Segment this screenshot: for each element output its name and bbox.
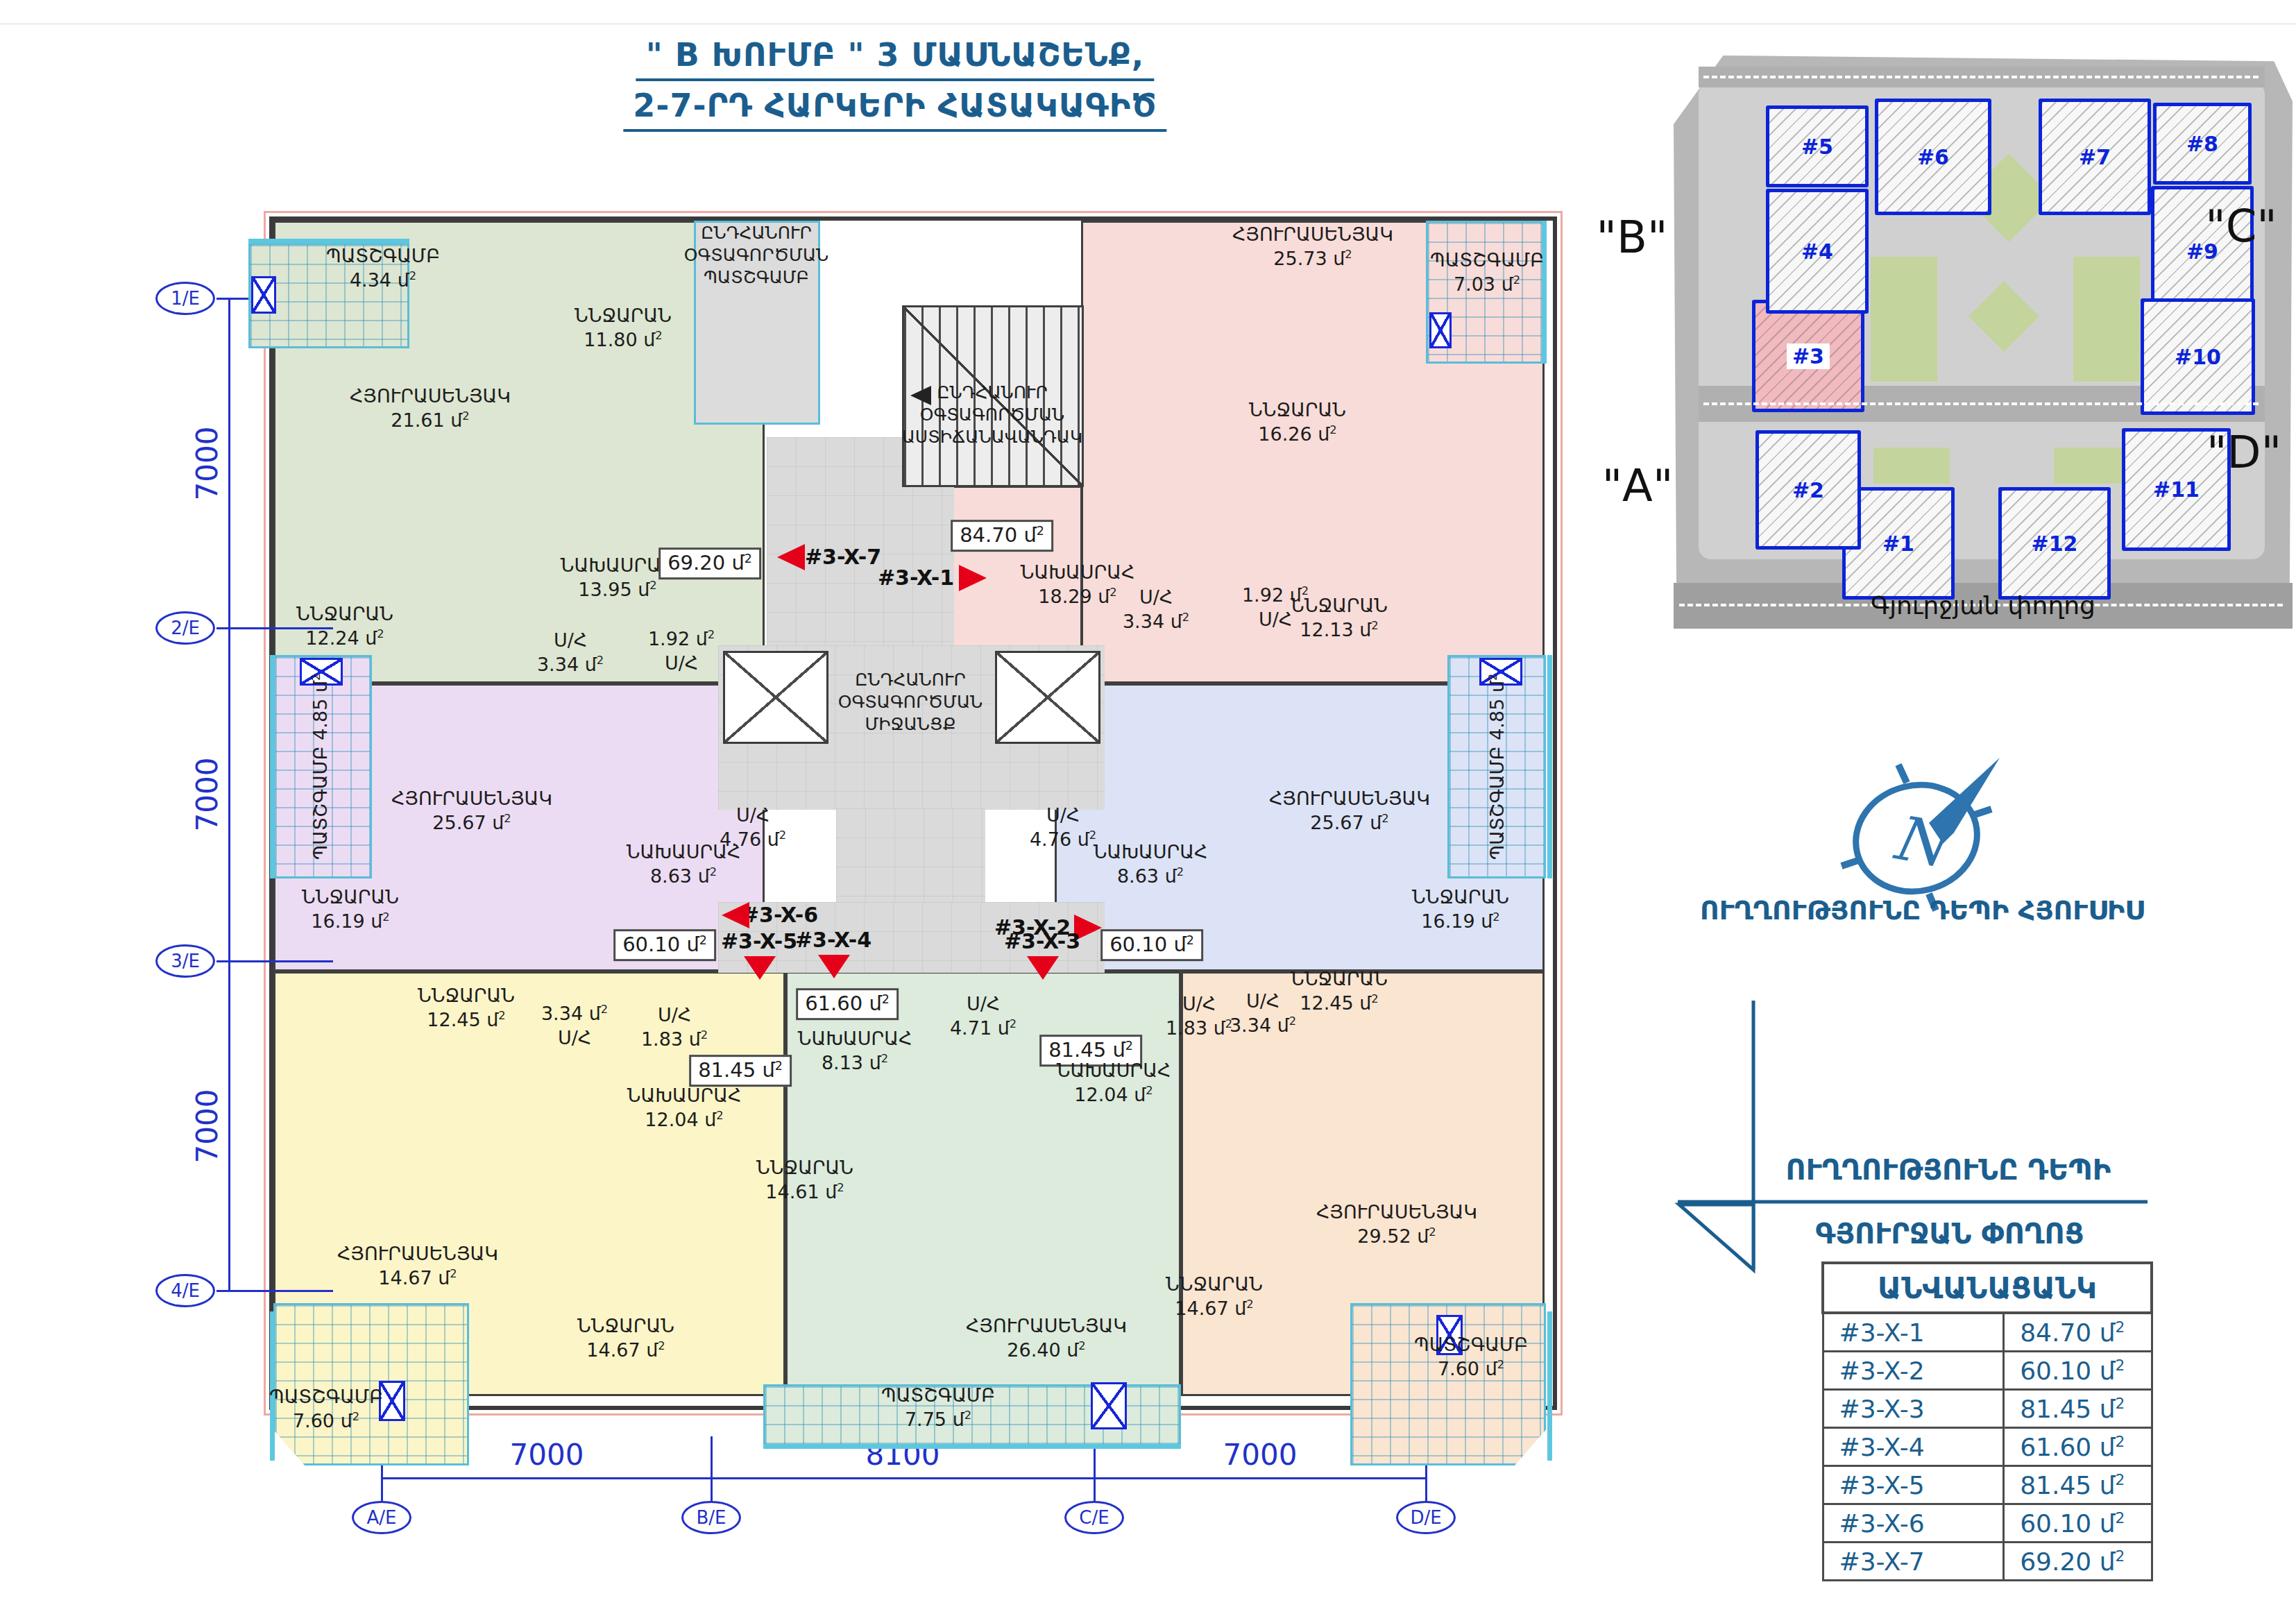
- legend-row-#3-X-3: #3-X-381.45 մ2: [1823, 1390, 2152, 1428]
- quadrant-label-2: "A": [1602, 460, 1674, 511]
- room-label-b-sh: Ս/Հ4.76 մ2: [1030, 803, 1096, 851]
- glazing-strip-5: [763, 1444, 1181, 1449]
- window-x-icon-1: [1429, 312, 1452, 348]
- entry-code-#3-X-5: #3-X-5: [721, 929, 797, 953]
- compass-icon: N: [1839, 751, 2012, 917]
- room-label-p-hall: ՆԱԽԱՍՐԱՀ18.29 մ2: [1021, 560, 1134, 609]
- street-direction-line1: ՈՒՂՂՈՒԹՅՈՒՆԸ ԴԵՊԻ: [1786, 1154, 2111, 1186]
- legend-area: 81.45 մ2: [2004, 1390, 2152, 1428]
- room-label-m-bed: ՆՆՋԱՐԱՆ14.61 մ2: [756, 1155, 853, 1204]
- site-building-#2: #2: [1755, 430, 1861, 550]
- legend-area: 84.70 մ2: [2004, 1313, 2152, 1352]
- room-label-l-sh: Ս/Հ4.76 մ2: [720, 803, 786, 851]
- axis-bubble-B/E: B/E: [681, 1501, 741, 1534]
- site-building-label-#8: #8: [2186, 132, 2218, 156]
- site-building-#5: #5: [1766, 105, 1869, 187]
- entry-code-#3-X-4: #3-X-4: [795, 928, 871, 952]
- axis-bubble-D/E: D/E: [1396, 1501, 1456, 1534]
- quadrant-label-0: "B": [1597, 212, 1668, 263]
- room-label-y-bed1: ՆՆՋԱՐԱՆ12.45 մ2: [418, 983, 515, 1032]
- room-label-b-hall: ՆԱԽԱՍՐԱՀ8.63 մ2: [1094, 840, 1207, 888]
- axis-bubble-A/E: A/E: [352, 1501, 411, 1534]
- legend-row-#3-X-4: #3-X-461.60 մ2: [1823, 1428, 2152, 1466]
- room-label-g-hall: ՆԱԽԱՍՐԱՀ13.95 մ2: [561, 553, 674, 602]
- road-dashes-0: [1703, 402, 2259, 405]
- legend-code: #3-X-6: [1823, 1504, 2004, 1543]
- room-label-m-balc: ՊԱՏՇԳԱՄԲ7.75 մ2: [881, 1383, 995, 1431]
- common-corridor-label: ԸՆԴՀԱՆՈՒՐՕԳՏԱԳՈՐԾՄԱՆՄԻՋԱՆՑՔ: [838, 669, 983, 736]
- site-green-5: [2054, 448, 2130, 484]
- room-label-m-living: ՀՅՈՒՐԱՍԵՆՅԱԿ26.40 մ2: [966, 1314, 1127, 1362]
- site-building-#3: #3: [1752, 300, 1864, 412]
- legend-area: 81.45 մ2: [2004, 1466, 2152, 1504]
- road-dashes-2: [1703, 76, 2259, 78]
- room-label-p-sh2: 1.92 մ2Ս/Հ: [1242, 583, 1309, 631]
- room-label-m-hall: ՆԱԽԱՍՐԱՀ8.13 մ2: [798, 1026, 912, 1075]
- left-axis-line: [228, 298, 230, 1291]
- legend-area: 69.20 մ2: [2004, 1543, 2152, 1581]
- site-building-label-#12: #12: [2032, 532, 2078, 556]
- room-label-l-bed: ՆՆՋԱՐԱՆ16.19 մ2: [302, 885, 399, 933]
- room-label-b-balc: ՊԱՏՇԳԱՄԲ 4.85 մ2: [1485, 674, 1509, 860]
- common-balcony-label: ԸՆԴՀԱՆՈՒՐՕԳՏԱԳՈՐԾՄԱՆՊԱՏՇԳԱՄԲ: [684, 222, 829, 289]
- common-stairwell-label: ԸՆԴՀԱՆՈՒՐՕԳՏԱԳՈՐԾՄԱՆԱՍՏԻՃԱՆԱՎԱՆԴԱԿ: [902, 382, 1083, 448]
- legend-row-#3-X-6: #3-X-660.10 մ2: [1823, 1504, 2152, 1543]
- room-label-pe-sh1: Ս/Հ1.83 մ2: [1166, 992, 1232, 1040]
- entry-arrow-icon-#3-X-4: [818, 955, 850, 978]
- site-building-label-#4: #4: [1801, 239, 1833, 264]
- site-green-3: [2073, 257, 2140, 382]
- room-label-pe-sh2: Ս/Հ3.34 մ2: [1230, 989, 1296, 1037]
- site-building-#6: #6: [1875, 99, 1991, 215]
- site-building-#7: #7: [2039, 99, 2151, 215]
- room-label-pe-bed1: ՆՆՋԱՐԱՆ12.45 մ2: [1291, 967, 1388, 1015]
- room-label-b-living: ՀՅՈՒՐԱՍԵՆՅԱԿ25.67 մ2: [1269, 786, 1430, 835]
- axis-bubble-C/E: C/E: [1064, 1501, 1124, 1534]
- apartment-area-label-g-area: 69.20 մ2: [658, 547, 761, 579]
- site-building-#4: #4: [1766, 189, 1869, 314]
- room-label-g-balc: ՊԱՏՇԳԱՄԲ4.34 մ2: [326, 244, 440, 292]
- site-building-label-#10: #10: [2175, 345, 2221, 369]
- title-line-1: " B ԽՈՒՄԲ " 3 ՄԱՍՆԱՇԵՆՔ,: [636, 36, 1155, 81]
- site-building-label-#5: #5: [1801, 135, 1833, 159]
- entry-arrow-icon-#3-X-5: [744, 956, 776, 980]
- room-label-y-bed2: ՆՆՋԱՐԱՆ14.67 մ2: [577, 1314, 674, 1362]
- legend-row-#3-X-2: #3-X-260.10 մ2: [1823, 1352, 2152, 1390]
- legend-code: #3-X-2: [1823, 1352, 2004, 1390]
- site-building-#12: #12: [1998, 487, 2111, 600]
- legend-code: #3-X-7: [1823, 1543, 2004, 1581]
- legend-area: 60.10 մ2: [2004, 1504, 2152, 1543]
- left-axis-leader: [216, 1290, 333, 1292]
- legend-row-#3-X-1: #3-X-184.70 մ2: [1823, 1313, 2152, 1352]
- entry-arrow-icon-#3-X-1: [959, 565, 987, 591]
- north-direction-label: ՈՒՂՂՈՒԹՅՈՒՆԸ ԴԵՊԻ ՀՅՈՒՍԻՍ: [1700, 895, 2144, 926]
- left-dimension-1: 7000: [190, 758, 224, 832]
- site-building-#8: #8: [2153, 103, 2252, 185]
- site-green-4: [1873, 448, 1950, 484]
- site-building-#10: #10: [2141, 298, 2255, 415]
- room-label-p-living: ՀՅՈՒՐԱՍԵՆՅԱԿ25.73 մ2: [1232, 222, 1393, 271]
- entry-code-#3-X-3: #3-X-3: [1004, 929, 1080, 953]
- legend-table: ԱՆՎԱՆԱՑԱՆԿ #3-X-184.70 մ2#3-X-260.10 մ2#…: [1821, 1261, 2153, 1581]
- street-name-label: Գյուրջյան փողոց: [1871, 591, 2095, 620]
- glazing-strip-2: [270, 655, 275, 878]
- site-building-label-#6: #6: [1917, 145, 1949, 169]
- entry-code-#3-X-6: #3-X-6: [742, 903, 818, 927]
- street-direction-line2: ԳՅՈՒՐՋԱՆ ՓՈՂՈՑ: [1815, 1218, 2084, 1250]
- apartment-area-label-b-area: 60.10 մ2: [1100, 929, 1203, 961]
- quadrant-label-1: "C": [2205, 201, 2277, 252]
- room-label-y-sh2: Ս/Հ1.83 մ2: [641, 1003, 708, 1051]
- legend-code: #3-X-4: [1823, 1428, 2004, 1466]
- site-green-2: [1871, 257, 1937, 382]
- room-label-pe-bed2: ՆՆՋԱՐԱՆ14.67 մ2: [1166, 1272, 1263, 1320]
- entry-arrow-icon-#3-X-6: [722, 902, 749, 928]
- left-dimension-2: 7000: [190, 1089, 224, 1164]
- entry-code-#3-X-7: #3-X-7: [805, 545, 881, 569]
- room-label-p-balc: ՊԱՏՇԳԱՄԲ7.03 մ2: [1430, 248, 1544, 296]
- site-building-label-#11: #11: [2153, 477, 2200, 502]
- axis-bubble-1/E: 1/E: [155, 282, 215, 315]
- room-label-p-bed1: ՆՆՋԱՐԱՆ16.26 մ2: [1249, 398, 1346, 446]
- site-building-label-#3: #3: [1787, 343, 1830, 369]
- room-label-y-sh1: 3.34 մ2Ս/Հ: [541, 1001, 608, 1050]
- legend-code: #3-X-1: [1823, 1313, 2004, 1352]
- legend-row-#3-X-7: #3-X-769.20 մ2: [1823, 1543, 2152, 1581]
- room-label-b-bed: ՆՆՋԱՐԱՆ16.19 մ2: [1412, 885, 1509, 933]
- window-x-icon-0: [251, 276, 276, 314]
- room-label-l-living: ՀՅՈՒՐԱՍԵՆՅԱԿ25.67 մ2: [391, 786, 552, 835]
- title-line-2: 2-7-ՐԴ ՀԱՐԿԵՐԻ ՀԱՏԱԿԱԳԻԾ: [623, 87, 1166, 132]
- legend-row-#3-X-5: #3-X-581.45 մ2: [1823, 1466, 2152, 1504]
- entry-arrow-icon-#3-X-3: [1027, 956, 1059, 980]
- elevator-shaft-icon-0: [723, 651, 828, 744]
- room-label-p-sh1: Ս/Հ3.34 մ2: [1123, 585, 1189, 634]
- glazing-strip-3: [1547, 655, 1552, 878]
- left-dimension-0: 7000: [190, 427, 224, 501]
- bottom-dimension-2: 7000: [1223, 1438, 1298, 1472]
- sheet-title: " B ԽՈՒՄԲ " 3 ՄԱՍՆԱՇԵՆՔ, 2-7-ՐԴ ՀԱՐԿԵՐԻ …: [623, 36, 1166, 132]
- axis-bubble-4/E: 4/E: [155, 1274, 215, 1307]
- site-building-label-#2: #2: [1792, 478, 1824, 502]
- top-rule: [0, 24, 2296, 24]
- bottom-axis-line: [382, 1477, 1426, 1479]
- room-label-y-living: ՀՅՈՒՐԱՍԵՆՅԱԿ14.67 մ2: [337, 1241, 498, 1290]
- room-label-g-sh1: Ս/Հ3.34 մ2: [537, 628, 604, 677]
- apartment-area-label-p-area: 84.70 մ2: [951, 520, 1053, 552]
- axis-bubble-2/E: 2/E: [155, 611, 215, 645]
- room-label-l-balc: ՊԱՏՇԳԱՄԲ 4.85 մ2: [308, 674, 332, 860]
- room-label-g-bed1: ՆՆՋԱՐԱՆ11.80 մ2: [575, 303, 672, 352]
- room-label-y-hall: ՆԱԽԱՍՐԱՀ12.04 մ2: [627, 1083, 741, 1132]
- entry-arrow-icon-#3-X-7: [777, 544, 805, 570]
- window-x-icon-5: [1091, 1382, 1127, 1429]
- bottom-dimension-0: 7000: [510, 1438, 584, 1472]
- legend-title: ԱՆՎԱՆԱՑԱՆԿ: [1823, 1263, 2152, 1313]
- room-label-g-bed2: ՆՆՋԱՐԱՆ12.24 մ2: [296, 602, 393, 650]
- legend-code: #3-X-5: [1823, 1466, 2004, 1504]
- apartment-area-label-m-area: 61.60 մ2: [796, 988, 899, 1020]
- floorplan-sheet: " B ԽՈՒՄԲ " 3 ՄԱՍՆԱՇԵՆՔ, 2-7-ՐԴ ՀԱՐԿԵՐԻ …: [0, 0, 2296, 1623]
- common-corridor-zone-2: [836, 808, 985, 903]
- room-label-pe-living: ՀՅՈՒՐԱՍԵՆՅԱԿ29.52 մ2: [1316, 1200, 1477, 1248]
- site-building-label-#7: #7: [2079, 145, 2111, 169]
- site-building-label-#1: #1: [1882, 532, 1914, 556]
- apartment-area-label-l-area: 60.10 մ2: [613, 929, 716, 961]
- room-label-m-sh: Ս/Հ4.71 մ2: [950, 992, 1017, 1040]
- room-label-g-sh2: 1.92 մ2Ս/Հ: [648, 627, 715, 675]
- elevator-shaft-icon-1: [995, 651, 1100, 744]
- axis-bubble-3/E: 3/E: [155, 944, 215, 978]
- room-label-y-balc: ՊԱՏՇԳԱՄԲ7.60 մ2: [269, 1384, 383, 1433]
- bottom-axis-leader: [711, 1436, 713, 1501]
- room-label-pe-balc: ՊԱՏՇԳԱՄԲ7.60 մ2: [1414, 1332, 1528, 1381]
- room-label-pe-hall: ՆԱԽԱՍՐԱՀ12.04 մ2: [1057, 1058, 1171, 1107]
- legend-code: #3-X-3: [1823, 1390, 2004, 1428]
- quadrant-label-3: "D": [2206, 427, 2281, 478]
- apartment-area-label-y-area: 81.45 մ2: [689, 1055, 792, 1087]
- left-axis-leader: [216, 960, 333, 962]
- room-label-g-living: ՀՅՈՒՐԱՍԵՆՅԱԿ21.61 մ2: [350, 384, 511, 432]
- legend-area: 60.10 մ2: [2004, 1352, 2152, 1390]
- legend-area: 61.60 մ2: [2004, 1428, 2152, 1466]
- entry-code-#3-X-1: #3-X-1: [878, 566, 954, 590]
- glazing-strip-6: [1547, 1311, 1552, 1461]
